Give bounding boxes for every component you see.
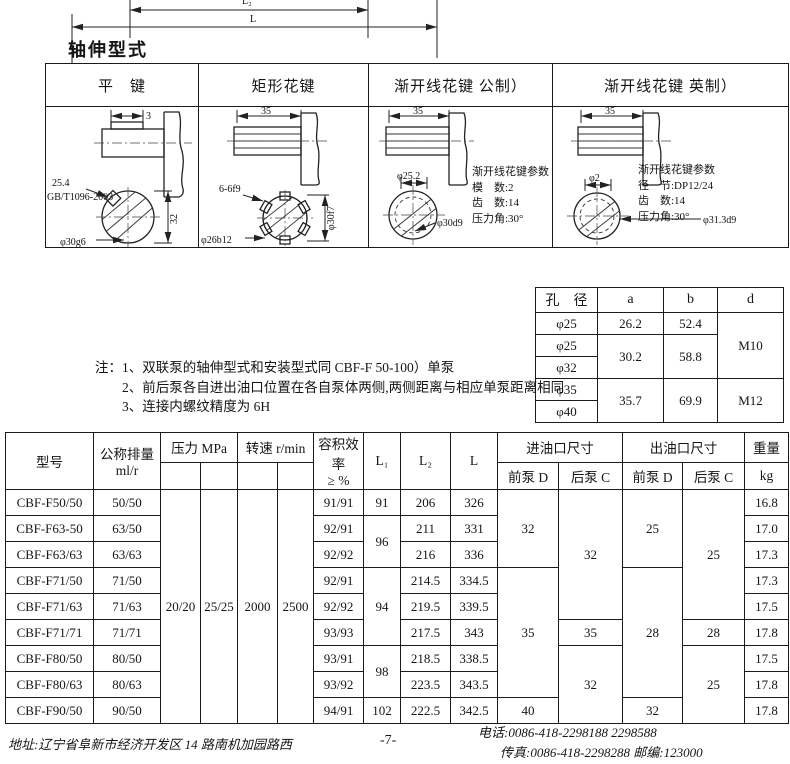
- param-line: 渐开线花键参数: [472, 165, 549, 181]
- col-subheader-rear-c: 后泵 C: [559, 462, 623, 489]
- dim-label: φ30d9: [437, 218, 463, 229]
- cell: 17.0: [745, 516, 789, 542]
- page: L₂ L 轴伸型式 平 键 矩形花键 渐开线花键 公制） 渐开线花键 英制） 3: [0, 0, 790, 764]
- cell: 17.8: [745, 620, 789, 646]
- cell: 17.5: [745, 646, 789, 672]
- standard-label: GB/T1096-2003: [47, 192, 113, 203]
- table-row: 3 25.4 GB/T1096-2003: [46, 107, 789, 248]
- dim-label: 35: [605, 107, 615, 117]
- cell: M12: [718, 379, 784, 423]
- cell: 222.5: [401, 698, 451, 724]
- involute-metric-params: 渐开线花键参数 模 数:2 齿 数:14 压力角:30°: [472, 165, 549, 227]
- col-subheader-rear-c: 后泵 C: [683, 462, 745, 489]
- cell: 32: [559, 490, 623, 620]
- dim-label: 35: [261, 107, 271, 117]
- bore-header: 孔 径: [536, 288, 598, 313]
- footer-fax: 传真:0086-418-2298288 邮编:123000: [500, 742, 703, 761]
- param-line: 模 数:2: [472, 181, 549, 197]
- col-header-model: 型号: [6, 433, 94, 490]
- page-title: 轴伸型式: [68, 36, 148, 62]
- dim-label: φ25.2: [397, 171, 420, 182]
- cell: 28: [623, 568, 683, 698]
- cell: 20/20: [161, 490, 201, 724]
- notes: 注：1、双联泵的轴伸型式和安装型式同 CBF-F 50-100）单泵 2、前后泵…: [95, 358, 564, 417]
- spline-header-rect-spline: 矩形花键: [199, 64, 369, 107]
- col-header-inlet: 进油口尺寸: [498, 433, 623, 463]
- dim-label: φ26b12: [201, 235, 232, 246]
- col-header-efficiency: 容积效率 ≥ %: [314, 433, 364, 490]
- param-line: 齿 数:14: [638, 194, 715, 210]
- cell: 92/91: [314, 516, 364, 542]
- dim-label: 35: [413, 107, 423, 117]
- cell: 17.8: [745, 698, 789, 724]
- dim-label: L: [250, 14, 256, 25]
- cell: 50/50: [94, 490, 161, 516]
- bore-header: d: [718, 288, 784, 313]
- table-row: CBF-F50/50 50/50 20/20 25/25 2000 2500 9…: [6, 490, 789, 516]
- dim-label: φ30g6: [60, 237, 86, 247]
- flat-key-diagram-cell: 3 25.4 GB/T1096-2003: [46, 107, 199, 248]
- col-subheader-front-d: 前泵 D: [623, 462, 683, 489]
- note-line: 3、连接内螺纹精度为 6H: [122, 397, 564, 417]
- table-row: CBF-F90/50 90/50 94/91 102 222.5 342.5 4…: [6, 698, 789, 724]
- cell-model: CBF-F71/63: [6, 594, 94, 620]
- param-line: 径 节:DP12/24: [638, 179, 715, 195]
- cell: 326: [451, 490, 498, 516]
- dim-label: φ2: [589, 173, 600, 184]
- cell: φ25: [536, 313, 598, 335]
- col-header-weight: 重量: [745, 433, 789, 463]
- cell: 102: [364, 698, 401, 724]
- cell: 16.8: [745, 490, 789, 516]
- cell: 338.5: [451, 646, 498, 672]
- cell: 336: [451, 542, 498, 568]
- cell: 331: [451, 516, 498, 542]
- cell-model: CBF-F63-50: [6, 516, 94, 542]
- cell-model: CBF-F71/71: [6, 620, 94, 646]
- col-subheader-weight-unit: kg: [745, 462, 789, 489]
- note-line: 2、前后泵各自进出油口位置在各自泵体两侧,两侧距离与相应单泵距离相同: [122, 378, 564, 398]
- cell: 17.3: [745, 568, 789, 594]
- cell: 28: [683, 620, 745, 646]
- cell: 25: [623, 490, 683, 568]
- bore-dimension-table: 孔 径 a b d φ25 26.2 52.4 M10 φ25 30.2 58.…: [535, 287, 784, 423]
- col-header-l: L: [451, 433, 498, 490]
- bore-header: b: [664, 288, 718, 313]
- cell: 91/91: [314, 490, 364, 516]
- cell: 2500: [278, 490, 314, 724]
- col-header-outlet: 出油口尺寸: [623, 433, 745, 463]
- cell: 35.7: [598, 379, 664, 423]
- spline-header-involute-inch: 渐开线花键 英制）: [553, 64, 789, 107]
- dim-label: 32: [169, 214, 180, 224]
- dim-label: L₂: [242, 0, 252, 7]
- cell: 91: [364, 490, 401, 516]
- cell: 32: [559, 646, 623, 724]
- cell: 40: [498, 698, 559, 724]
- cell: 218.5: [401, 646, 451, 672]
- cell: 94: [364, 568, 401, 646]
- cell: 80/63: [94, 672, 161, 698]
- cell: 92/91: [314, 568, 364, 594]
- page-number: -7-: [380, 733, 396, 749]
- spline-header-flat-key: 平 键: [46, 64, 199, 107]
- note-line: 注：1、双联泵的轴伸型式和安装型式同 CBF-F 50-100）单泵: [95, 358, 564, 378]
- param-line: 压力角:30°: [638, 210, 715, 226]
- col-header-displacement: 公称排量 ml/r: [94, 433, 161, 490]
- cell: 71/63: [94, 594, 161, 620]
- cell: 342.5: [451, 698, 498, 724]
- cell: 93/93: [314, 620, 364, 646]
- table-row: 平 键 矩形花键 渐开线花键 公制） 渐开线花键 英制）: [46, 64, 789, 107]
- cell-model: CBF-F90/50: [6, 698, 94, 724]
- cell: 343.5: [451, 672, 498, 698]
- cell: 94/91: [314, 698, 364, 724]
- table-row: φ35 35.7 69.9 M12: [536, 379, 784, 401]
- involute-inch-diagram-cell: 35 φ2 φ31.3d9: [553, 107, 789, 248]
- col-header-l1: L₁: [364, 433, 401, 490]
- cell: 17.8: [745, 672, 789, 698]
- cell: 32: [623, 698, 683, 724]
- cell: 63/50: [94, 516, 161, 542]
- cell: 216: [401, 542, 451, 568]
- cell: 90/50: [94, 698, 161, 724]
- cell: 92/92: [314, 594, 364, 620]
- cell: 343: [451, 620, 498, 646]
- cell-model: CBF-F80/50: [6, 646, 94, 672]
- header-line: 公称排量: [94, 443, 160, 463]
- rect-spline-diagram-cell: 35 6-6f9: [199, 107, 369, 248]
- dim-label: 6-6f9: [219, 184, 241, 195]
- cell: 217.5: [401, 620, 451, 646]
- cell: 25: [683, 646, 745, 724]
- col-subheader-front-d: 前泵 D: [498, 462, 559, 489]
- cell: 93/92: [314, 672, 364, 698]
- cell-model: CBF-F50/50: [6, 490, 94, 516]
- cell: 92/92: [314, 542, 364, 568]
- cell-model: CBF-F80/63: [6, 672, 94, 698]
- param-line: 压力角:30°: [472, 212, 549, 228]
- cell: 93/91: [314, 646, 364, 672]
- col-header-pressure: 压力 MPa: [161, 433, 238, 463]
- cell: 71/71: [94, 620, 161, 646]
- cell: 214.5: [401, 568, 451, 594]
- col-subheader-empty: [278, 462, 314, 489]
- cell: 35: [559, 620, 623, 646]
- cell: φ25: [536, 335, 598, 357]
- cell: M10: [718, 313, 784, 379]
- cell: 30.2: [598, 335, 664, 379]
- col-header-speed: 转速 r/min: [238, 433, 314, 463]
- cell: 2000: [238, 490, 278, 724]
- pump-spec-table: 型号 公称排量 ml/r 压力 MPa 转速 r/min 容积效率 ≥ % L₁…: [5, 432, 789, 724]
- footer-phone: 电话:0086-418-2298188 2298588: [478, 722, 657, 741]
- col-subheader-empty: [161, 462, 201, 489]
- spline-type-table: 平 键 矩形花键 渐开线花键 公制） 渐开线花键 英制） 3 25.4 GB/T…: [45, 63, 789, 248]
- cell-model: CBF-F71/50: [6, 568, 94, 594]
- cell-model: CBF-F63/63: [6, 542, 94, 568]
- cell: 69.9: [664, 379, 718, 423]
- rect-spline-drawing: 35 6-6f9: [199, 107, 366, 247]
- cell: 25: [683, 490, 745, 620]
- table-row: φ25 26.2 52.4 M10: [536, 313, 784, 335]
- dim-label: 25.4: [52, 178, 70, 189]
- cell: 63/63: [94, 542, 161, 568]
- cell: 17.3: [745, 542, 789, 568]
- header-line: ≥ %: [314, 473, 363, 489]
- table-row: 型号 公称排量 ml/r 压力 MPa 转速 r/min 容积效率 ≥ % L₁…: [6, 433, 789, 463]
- cell: 219.5: [401, 594, 451, 620]
- table-row: 孔 径 a b d: [536, 288, 784, 313]
- cell: 32: [498, 490, 559, 568]
- dim-label: 3: [146, 111, 151, 122]
- param-line: 渐开线花键参数: [638, 163, 715, 179]
- cell: 35: [498, 568, 559, 698]
- cell: 223.5: [401, 672, 451, 698]
- cell: 25/25: [201, 490, 238, 724]
- header-line: 容积效率: [314, 433, 363, 473]
- cell: 211: [401, 516, 451, 542]
- cell: 58.8: [664, 335, 718, 379]
- cell: 80/50: [94, 646, 161, 672]
- spline-header-involute-metric: 渐开线花键 公制）: [369, 64, 553, 107]
- table-row: CBF-F71/50 71/50 92/91 94 214.5 334.5 35…: [6, 568, 789, 594]
- param-line: 齿 数:14: [472, 196, 549, 212]
- col-subheader-empty: [201, 462, 238, 489]
- col-header-l2: L₂: [401, 433, 451, 490]
- cell: 334.5: [451, 568, 498, 594]
- cell: 52.4: [664, 313, 718, 335]
- involute-metric-diagram-cell: 35 φ25.2 φ30d9: [369, 107, 553, 248]
- footer-address: 地址:辽宁省阜新市经济开发区 14 路南机加园路西: [8, 734, 292, 753]
- cell: 98: [364, 646, 401, 698]
- involute-inch-params: 渐开线花键参数 径 节:DP12/24 齿 数:14 压力角:30°: [638, 163, 715, 225]
- bore-header: a: [598, 288, 664, 313]
- flat-key-drawing: 3 25.4 GB/T1096-2003: [46, 107, 196, 247]
- cell: 96: [364, 516, 401, 568]
- cell: 206: [401, 490, 451, 516]
- header-line: ml/r: [94, 463, 160, 479]
- cell: 339.5: [451, 594, 498, 620]
- cell: 26.2: [598, 313, 664, 335]
- cell: 71/50: [94, 568, 161, 594]
- dim-label: φ30f7: [326, 206, 337, 230]
- cell: 17.5: [745, 594, 789, 620]
- col-subheader-empty: [238, 462, 278, 489]
